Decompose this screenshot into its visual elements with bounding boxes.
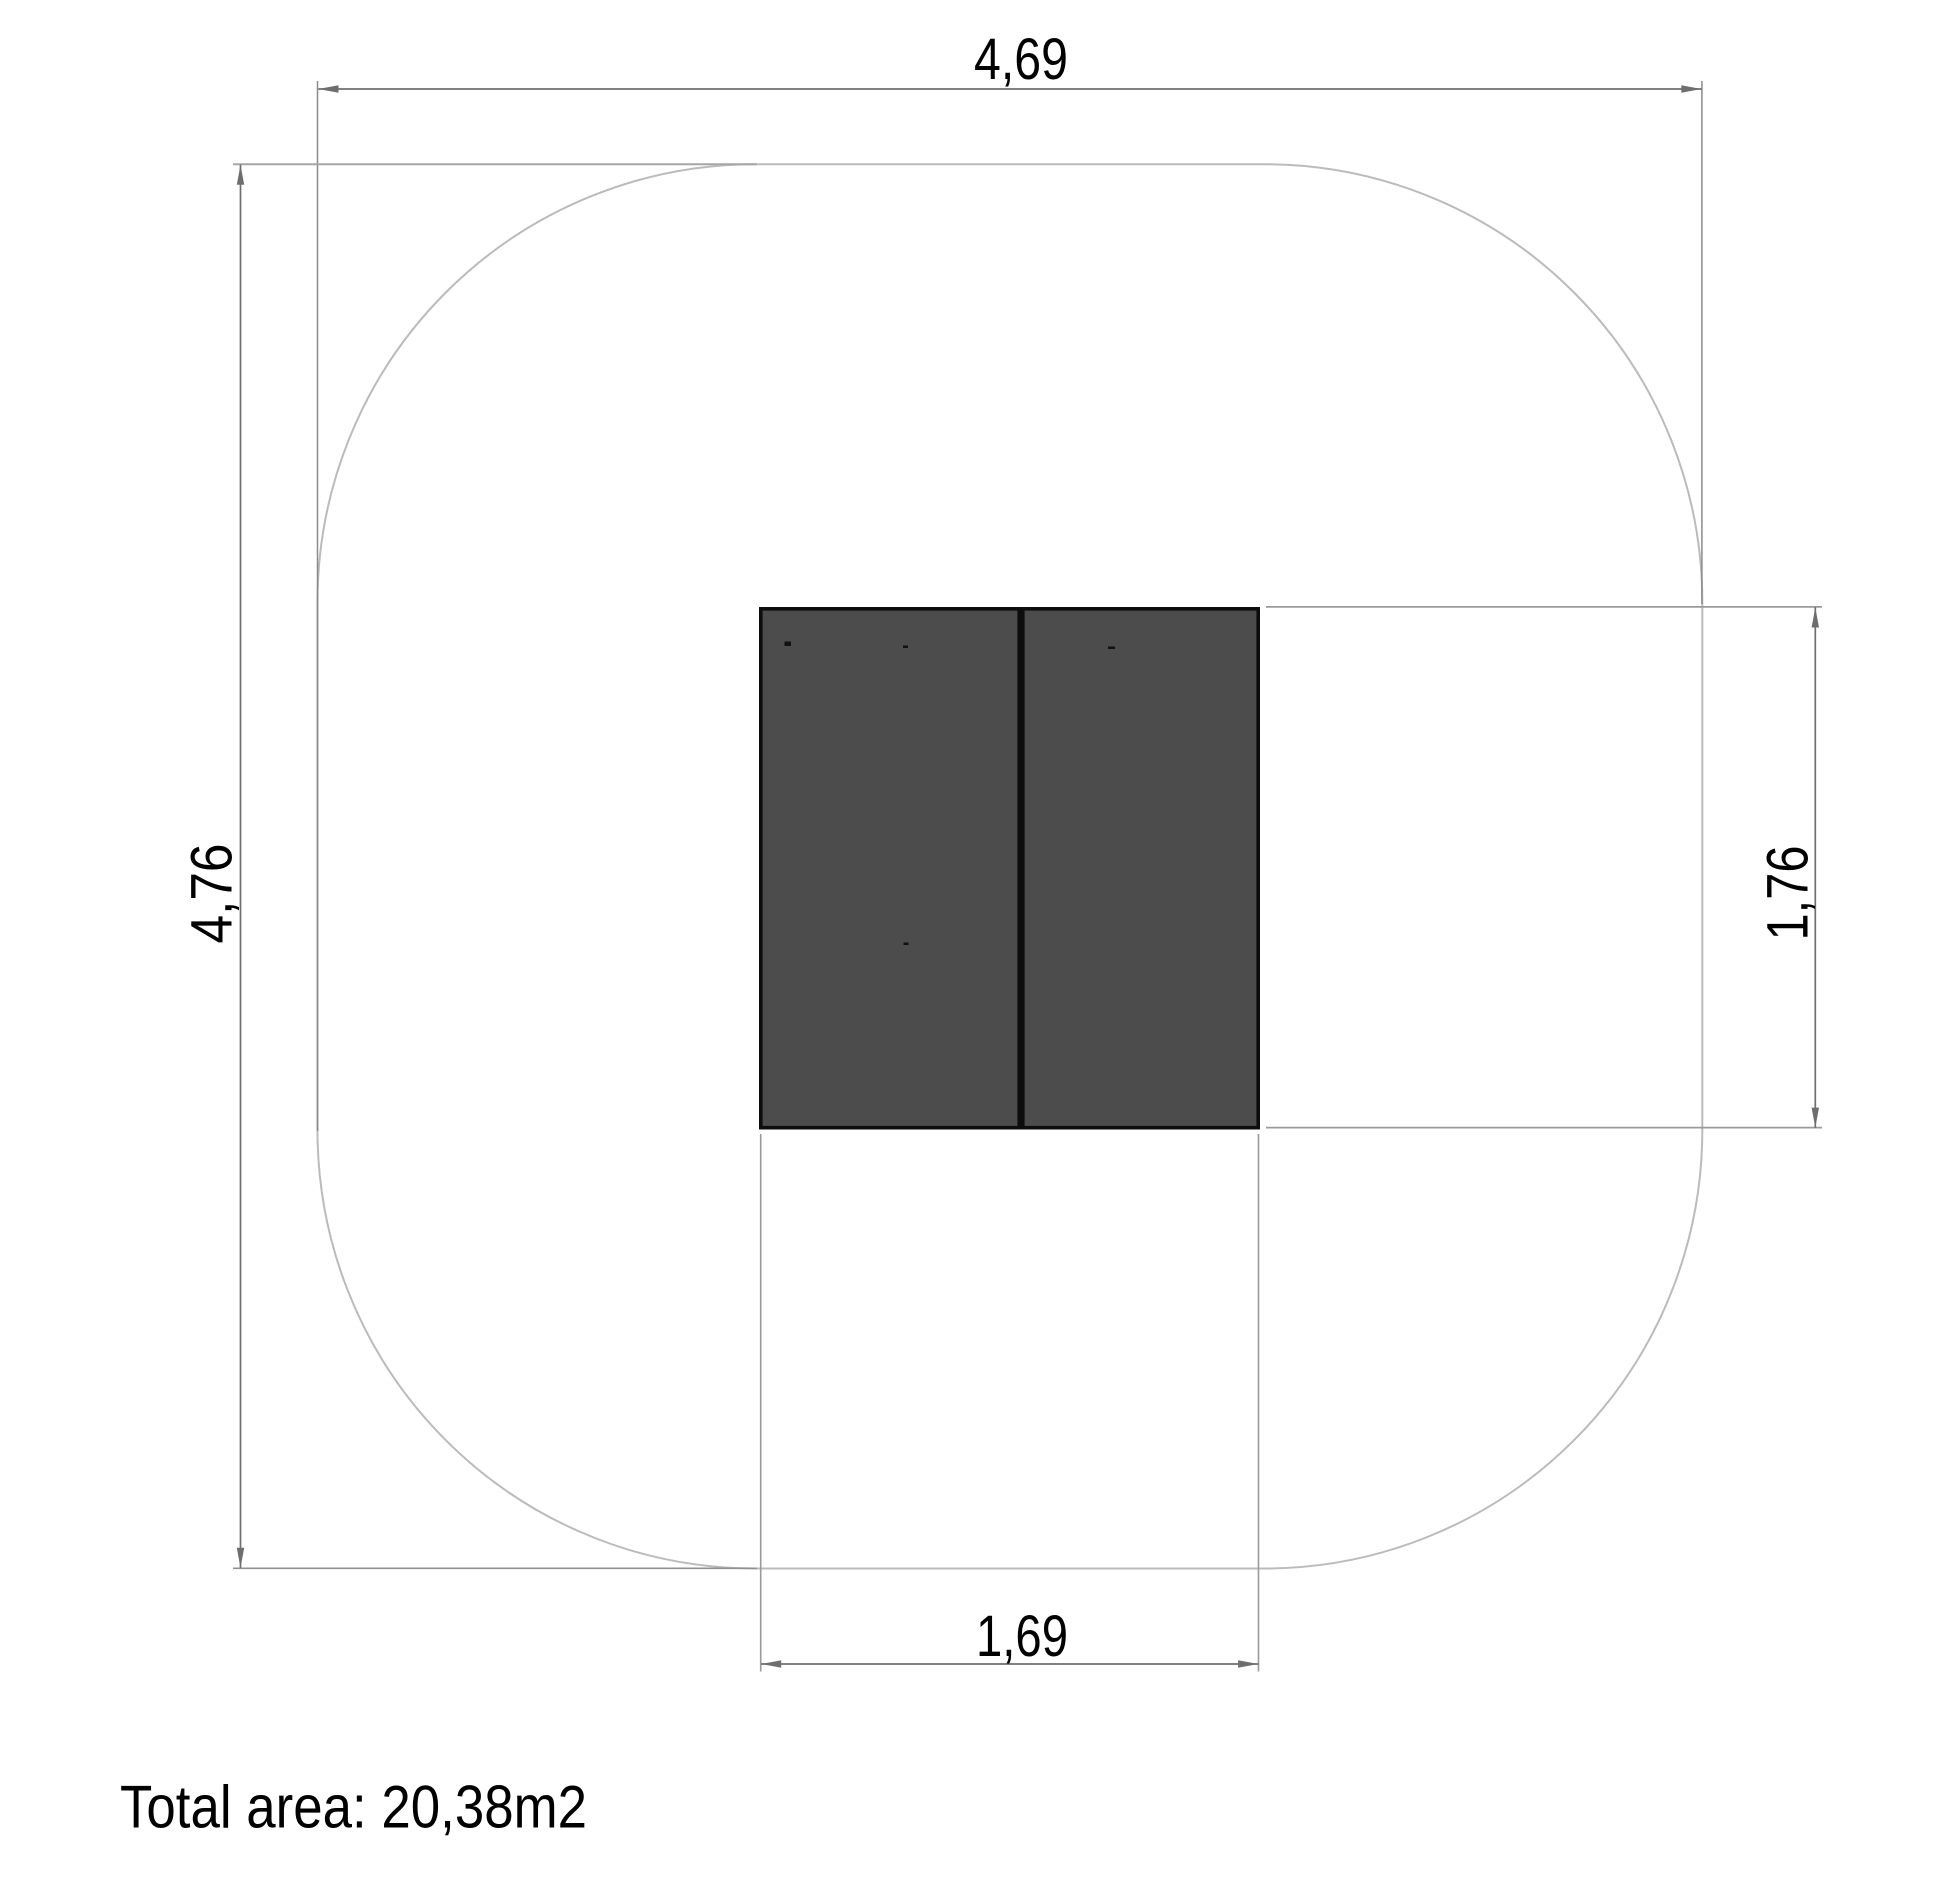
svg-text:1,69: 1,69 xyxy=(976,1604,1068,1669)
svg-text:4,76: 4,76 xyxy=(180,844,245,944)
svg-text:Total area: 20,38m2: Total area: 20,38m2 xyxy=(120,1774,587,1841)
svg-text:1,76: 1,76 xyxy=(1756,846,1821,941)
svg-text:4,69: 4,69 xyxy=(974,27,1068,92)
